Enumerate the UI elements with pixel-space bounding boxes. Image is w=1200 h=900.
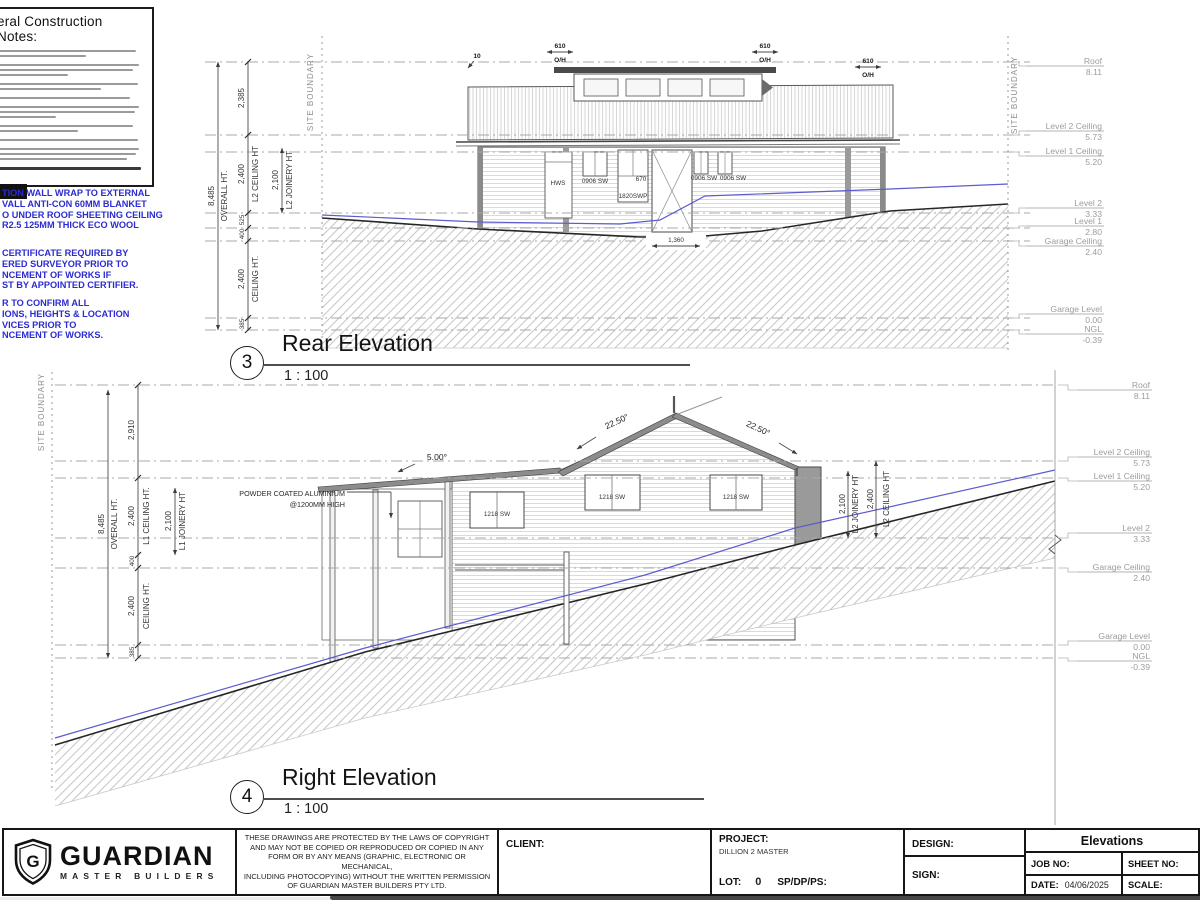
lot-label: LOT: (719, 877, 741, 888)
rear-dimensions: 8,485 OVERALL HT. 2,385 2,400 L2 CEILING… (207, 59, 294, 333)
level-name: Garage Level (1050, 304, 1102, 314)
dim-text: 610 (862, 58, 873, 65)
notes-paragraph (0, 50, 145, 57)
logo-tagline: MASTER BUILDERS (60, 871, 219, 881)
level-name: Level 1 Ceiling (1094, 471, 1151, 481)
dim-text: 2,100 (838, 493, 847, 514)
dim-text: 525 (239, 214, 246, 225)
window-tag: 0906 SW (691, 175, 718, 182)
level-name: Roof (1132, 380, 1151, 390)
drawing-title: Rear Elevation (282, 330, 433, 357)
level-name: NGL (1084, 324, 1102, 334)
level-value: 5.20 (1085, 157, 1102, 167)
level-value: 5.20 (1133, 482, 1150, 492)
dim-text: 385 (239, 318, 246, 329)
level-name: Garage Ceiling (1045, 236, 1103, 246)
blue-notes-group-2: CERTIFICATE REQUIRED BY ERED SURVEYOR PR… (2, 248, 138, 291)
dim-text: 2,400 (237, 163, 246, 184)
rear-door-dim: 1,360 (646, 234, 706, 250)
roof-angle-label: 22.50° (603, 411, 630, 431)
dim-text: 2,400 (127, 595, 136, 616)
window-tag: 1218 SW (723, 494, 750, 501)
notes-paragraph (0, 139, 145, 141)
sheet-no-label: SHEET NO: (1128, 859, 1179, 869)
drawing-number-circle: 4 (230, 780, 264, 814)
level-name: Roof (1084, 56, 1103, 66)
design-label: DESIGN: (912, 839, 954, 850)
roof-angle-label: 22.50° (745, 418, 772, 438)
dim-text: 1,360 (668, 237, 684, 244)
right-level-labels: Roof 8.11 Level 2 Ceiling 5.73 Level 1 C… (1058, 380, 1152, 672)
elevations-canvas: SITE BOUNDARY SITE BOUNDARY 8,485 OVERAL… (0, 0, 1200, 900)
notes-paragraph (0, 97, 145, 99)
window-tag: 0906 SW (720, 175, 747, 182)
job-no-label: JOB NO: (1031, 859, 1070, 869)
level-value: 2.40 (1085, 247, 1102, 257)
dim-text: L1 JOINERY HT (178, 492, 187, 551)
project-label: PROJECT: (719, 834, 896, 845)
job-sheet-row: JOB NO: SHEET NO: (1026, 853, 1198, 876)
drawing-number-circle: 3 (230, 346, 264, 380)
dim-text: CEILING HT. (251, 256, 260, 302)
dim-text: O/H (759, 57, 771, 64)
level-value: -0.39 (1082, 335, 1102, 345)
spdpps-label: SP/DP/PS: (777, 877, 826, 888)
notes-paragraph (0, 64, 145, 76)
dim-text: 8,485 (207, 185, 216, 206)
general-notes-title: eral Construction Notes: (0, 14, 145, 44)
level-value: 5.73 (1085, 132, 1102, 142)
notes-paragraph (0, 83, 145, 90)
date-label: DATE: (1031, 880, 1059, 890)
general-notes-box: eral Construction Notes: (0, 7, 154, 187)
blue-note-line: ST BY APPOINTED CERTIFIER. (2, 280, 138, 291)
logo-initial: G (26, 852, 39, 871)
logo-text: GUARDIAN MASTER BUILDERS (60, 843, 219, 881)
sign-label: SIGN: (912, 870, 940, 881)
dim-text: 2,400 (866, 488, 875, 509)
level-name: Level 2 (1074, 198, 1102, 208)
project-value: DILLION 2 MASTER (719, 847, 896, 856)
logo-cell: G GUARDIAN MASTER BUILDERS (4, 830, 237, 894)
guardian-shield-icon: G (12, 838, 54, 886)
lot-value: 0 (755, 876, 761, 888)
notes-paragraph (0, 106, 145, 118)
rear-level-labels: Roof 8.11 Level 2 Ceiling 5.73 Level 1 C… (1012, 56, 1104, 345)
project-cell: PROJECT: DILLION 2 MASTER LOT: 0 SP/DP/P… (712, 830, 905, 894)
drawing-scale: 1 : 100 (284, 801, 328, 817)
level-value: 8.11 (1086, 67, 1102, 77)
right-elevation-drawing: SITE BOUNDARY 8,485 OVERALL HT. 2,910 2,… (37, 370, 1152, 825)
date-scale-row: DATE: 04/06/2025 SCALE: (1026, 876, 1198, 894)
level-value: 5.73 (1133, 458, 1150, 468)
client-label: CLIENT: (506, 839, 544, 850)
dim-text: 610 (759, 43, 770, 50)
blue-note-line: IONS, HEIGHTS & LOCATION (2, 309, 129, 320)
blue-note-line: O UNDER ROOF SHEETING CEILING (2, 210, 163, 221)
title-block: G GUARDIAN MASTER BUILDERS THESE DRAWING… (2, 828, 1200, 896)
copyright-line: FORM OR BY ANY MEANS (GRAPHIC, ELECTRONI… (243, 852, 491, 871)
window-tag: 1218 SW (484, 511, 511, 518)
dim-text: 10 (473, 53, 481, 60)
blue-note-line: VALL ANTI-CON 60MM BLANKET (2, 199, 163, 210)
dim-text: 385 (129, 646, 136, 657)
site-boundary-label: SITE BOUNDARY (306, 53, 315, 131)
rear-building (456, 67, 900, 238)
lot-row: LOT: 0 SP/DP/PS: (719, 876, 896, 890)
dim-text: L2 JOINERY HT (285, 151, 294, 210)
drawing-sheet: SITE BOUNDARY SITE BOUNDARY 8,485 OVERAL… (0, 0, 1200, 900)
blue-note-line: R TO CONFIRM ALL (2, 298, 129, 309)
dim-text: L2 CEILING HT (251, 146, 260, 202)
copyright-line: OF GUARDIAN MASTER BUILDERS PTY LTD. (243, 881, 491, 891)
annotation-text: POWDER COATED ALUMINIUM (239, 489, 345, 498)
level-value: 3.33 (1133, 534, 1150, 544)
deck-post (564, 552, 569, 644)
notes-paragraph (0, 167, 145, 170)
dim-text: O/H (554, 57, 566, 64)
dim-text: O/H (862, 72, 874, 79)
design-cell: DESIGN: SIGN: (905, 830, 1026, 894)
level-name: NGL (1132, 651, 1150, 661)
dim-text: 2,400 (127, 505, 136, 526)
blue-notes-group-1: TION WALL WRAP TO EXTERNAL VALL ANTI-CON… (2, 188, 163, 231)
site-boundary-label: SITE BOUNDARY (37, 373, 46, 451)
blue-note-line: TION WALL WRAP TO EXTERNAL (2, 188, 163, 199)
dim-text: 2,400 (237, 268, 246, 289)
logo-name: GUARDIAN (60, 843, 219, 869)
dim-text: 2,385 (237, 87, 246, 108)
window-tag: 1218 SW (599, 494, 626, 501)
level-value: 8.11 (1134, 391, 1150, 401)
right-dimensions: 8,485 OVERALL HT. 2,910 2,400 L1 CEILING… (97, 382, 187, 661)
level-value: -0.39 (1130, 662, 1150, 672)
notes-paragraph (0, 148, 145, 160)
copyright-cell: THESE DRAWINGS ARE PROTECTED BY THE LAWS… (237, 830, 499, 894)
blue-note-line: VICES PRIOR TO (2, 320, 129, 331)
site-boundary-label: SITE BOUNDARY (1010, 56, 1019, 134)
level-name: Level 2 (1122, 523, 1150, 533)
blue-note-line: R2.5 125MM THICK ECO WOOL (2, 220, 163, 231)
window-tag: 0906 SW (582, 178, 609, 185)
blue-note-line: ERED SURVEYOR PRIOR TO (2, 259, 138, 270)
level-name: Level 1 (1074, 216, 1102, 226)
dim-text: OVERALL HT. (220, 171, 229, 222)
blue-note-line: CERTIFICATE REQUIRED BY (2, 248, 138, 259)
dim-text: 2,100 (164, 510, 173, 531)
dim-text: L2 JOINERY HT (851, 475, 860, 534)
copyright-line: AND MAY NOT BE COPIED OR REPRODUCED OR C… (243, 843, 491, 853)
blue-note-line: NCEMENT OF WORKS IF (2, 270, 138, 281)
blue-notes-group-3: R TO CONFIRM ALL IONS, HEIGHTS & LOCATIO… (2, 298, 129, 341)
dim-text: 2,100 (271, 169, 280, 190)
drawing-scale: 1 : 100 (284, 368, 328, 384)
level-name: Level 1 Ceiling (1046, 146, 1103, 156)
dim-text: 610 (554, 43, 565, 50)
dim-text: 400 (239, 228, 246, 239)
scale-label: SCALE: (1128, 880, 1163, 890)
level-name: Garage Ceiling (1093, 562, 1151, 572)
dim-text: OVERALL HT. (110, 499, 119, 550)
drawing-title: Right Elevation (282, 764, 437, 791)
blue-note-line: NCEMENT OF WORKS. (2, 330, 129, 341)
dim-text: L1 CEILING HT. (142, 487, 151, 544)
title-underline (264, 364, 690, 366)
roof-angle-label: 5.00° (427, 452, 447, 462)
client-cell: CLIENT: (499, 830, 712, 894)
level-name: Level 2 Ceiling (1046, 121, 1103, 131)
dim-text: 2,910 (127, 419, 136, 440)
annotation-text: @1200MM HIGH (290, 500, 345, 509)
copyright-line: THESE DRAWINGS ARE PROTECTED BY THE LAWS… (243, 833, 491, 843)
title-underline (264, 798, 704, 800)
dim-text: 400 (129, 555, 136, 566)
sheet-title: Elevations (1026, 830, 1198, 853)
rear-elevation-drawing: SITE BOUNDARY SITE BOUNDARY 8,485 OVERAL… (205, 36, 1104, 352)
level-name: Level 2 Ceiling (1094, 447, 1151, 457)
sheet-info-cell: Elevations JOB NO: SHEET NO: DATE: 04/06… (1026, 830, 1198, 894)
level-name: Garage Level (1098, 631, 1150, 641)
level-value: 2.40 (1133, 573, 1150, 583)
date-value: 04/06/2025 (1065, 880, 1109, 890)
fixture-tag: HWS (551, 180, 566, 187)
dim-text: 8,485 (97, 513, 106, 534)
window-tag: 1820SWP (619, 193, 648, 200)
right-inner-dimensions: 2,100 L2 JOINERY HT 2,400 L2 CEILING HT (838, 461, 891, 538)
dim-text: CEILING HT. (142, 583, 151, 629)
dim-text: L2 CEILING HT (882, 471, 891, 527)
notes-paragraph (0, 125, 145, 132)
door-tag: 670 (636, 176, 647, 183)
copyright-line: INCLUDING PHOTOCOPYING) WITHOUT THE WRIT… (243, 872, 491, 882)
